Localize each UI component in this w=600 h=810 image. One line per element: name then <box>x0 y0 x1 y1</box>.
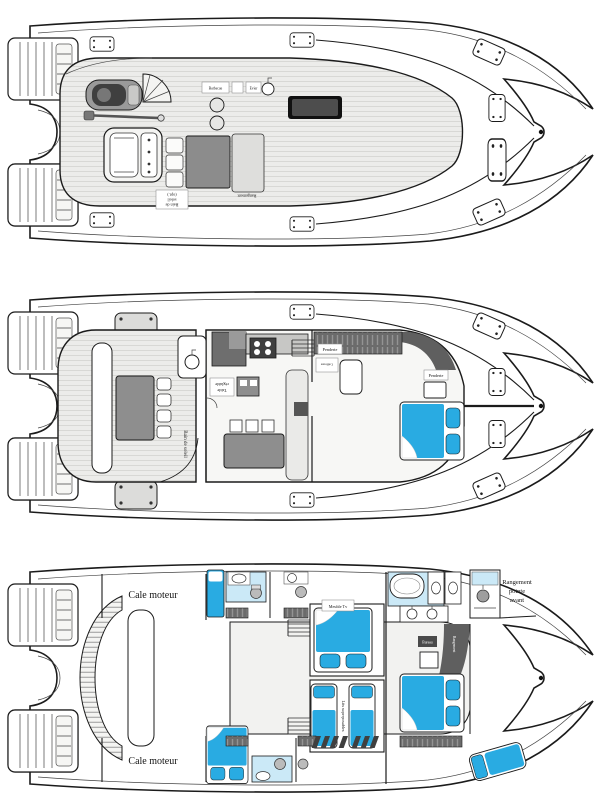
tv-cabinet-label: Meuble Tv <box>329 604 348 609</box>
cockpit-bench <box>92 343 112 473</box>
sun-pad <box>166 134 264 192</box>
sunroof <box>288 96 342 119</box>
fwd-cabin-bed <box>400 402 464 460</box>
wardrobe-label: Penderie <box>323 347 338 352</box>
sink-label: Evier <box>250 87 259 91</box>
engine-room-label-starboard: Cale moteur <box>128 756 178 767</box>
svg-text:Rangement: Rangement <box>452 636 456 652</box>
svg-text:Rangement: Rangement <box>502 579 532 586</box>
master-storage-bench <box>400 736 462 747</box>
yacht-deck-plan-figure: Barbecue Evier Bain de soleil (opt.) Ran… <box>0 0 600 810</box>
salon-table <box>237 377 259 396</box>
svg-text:réglable: réglable <box>215 382 229 387</box>
aft-platform <box>128 610 154 746</box>
deck-lower: Cale moteur Cale moteur Meuble Tv <box>8 564 593 792</box>
storage-label: Rangement <box>237 194 257 199</box>
cockpit-table <box>116 376 154 440</box>
master-bed <box>400 674 464 732</box>
dresser <box>424 382 446 398</box>
guest-cabin-mid: Meuble Tv <box>310 600 384 676</box>
salon-settee <box>286 370 308 480</box>
engine-room-label-port: Cale moteur <box>128 590 178 601</box>
wardrobe-label-2: Penderie <box>429 373 444 378</box>
vanity-label: Coiffeuse <box>320 363 333 367</box>
svg-text:Table: Table <box>217 388 226 393</box>
bar-stool <box>210 116 224 130</box>
svg-text:avant: avant <box>510 597 524 604</box>
vanity-seat <box>340 360 362 394</box>
day-head <box>470 570 500 618</box>
svg-text:(opt.): (opt.) <box>167 193 177 198</box>
bunks-label: Lits superposables <box>341 700 346 731</box>
svg-text:pointe: pointe <box>509 588 525 595</box>
companionway <box>294 402 308 416</box>
deck-flybridge: Barbecue Evier Bain de soleil (opt.) Ran… <box>8 18 593 246</box>
desk-label: Bureau <box>422 641 433 645</box>
bar-stool <box>210 98 224 112</box>
deck-main: Bain de soleil Table réglable <box>8 292 593 520</box>
helm-station <box>86 80 142 110</box>
deck-plans-svg: Barbecue Evier Bain de soleil (opt.) Ran… <box>0 0 600 810</box>
desk-seat <box>420 652 438 668</box>
sunbed-label: Bain de soleil <box>182 430 187 458</box>
barbecue-label: Barbecue <box>209 87 223 91</box>
jacuzzi <box>104 128 162 182</box>
